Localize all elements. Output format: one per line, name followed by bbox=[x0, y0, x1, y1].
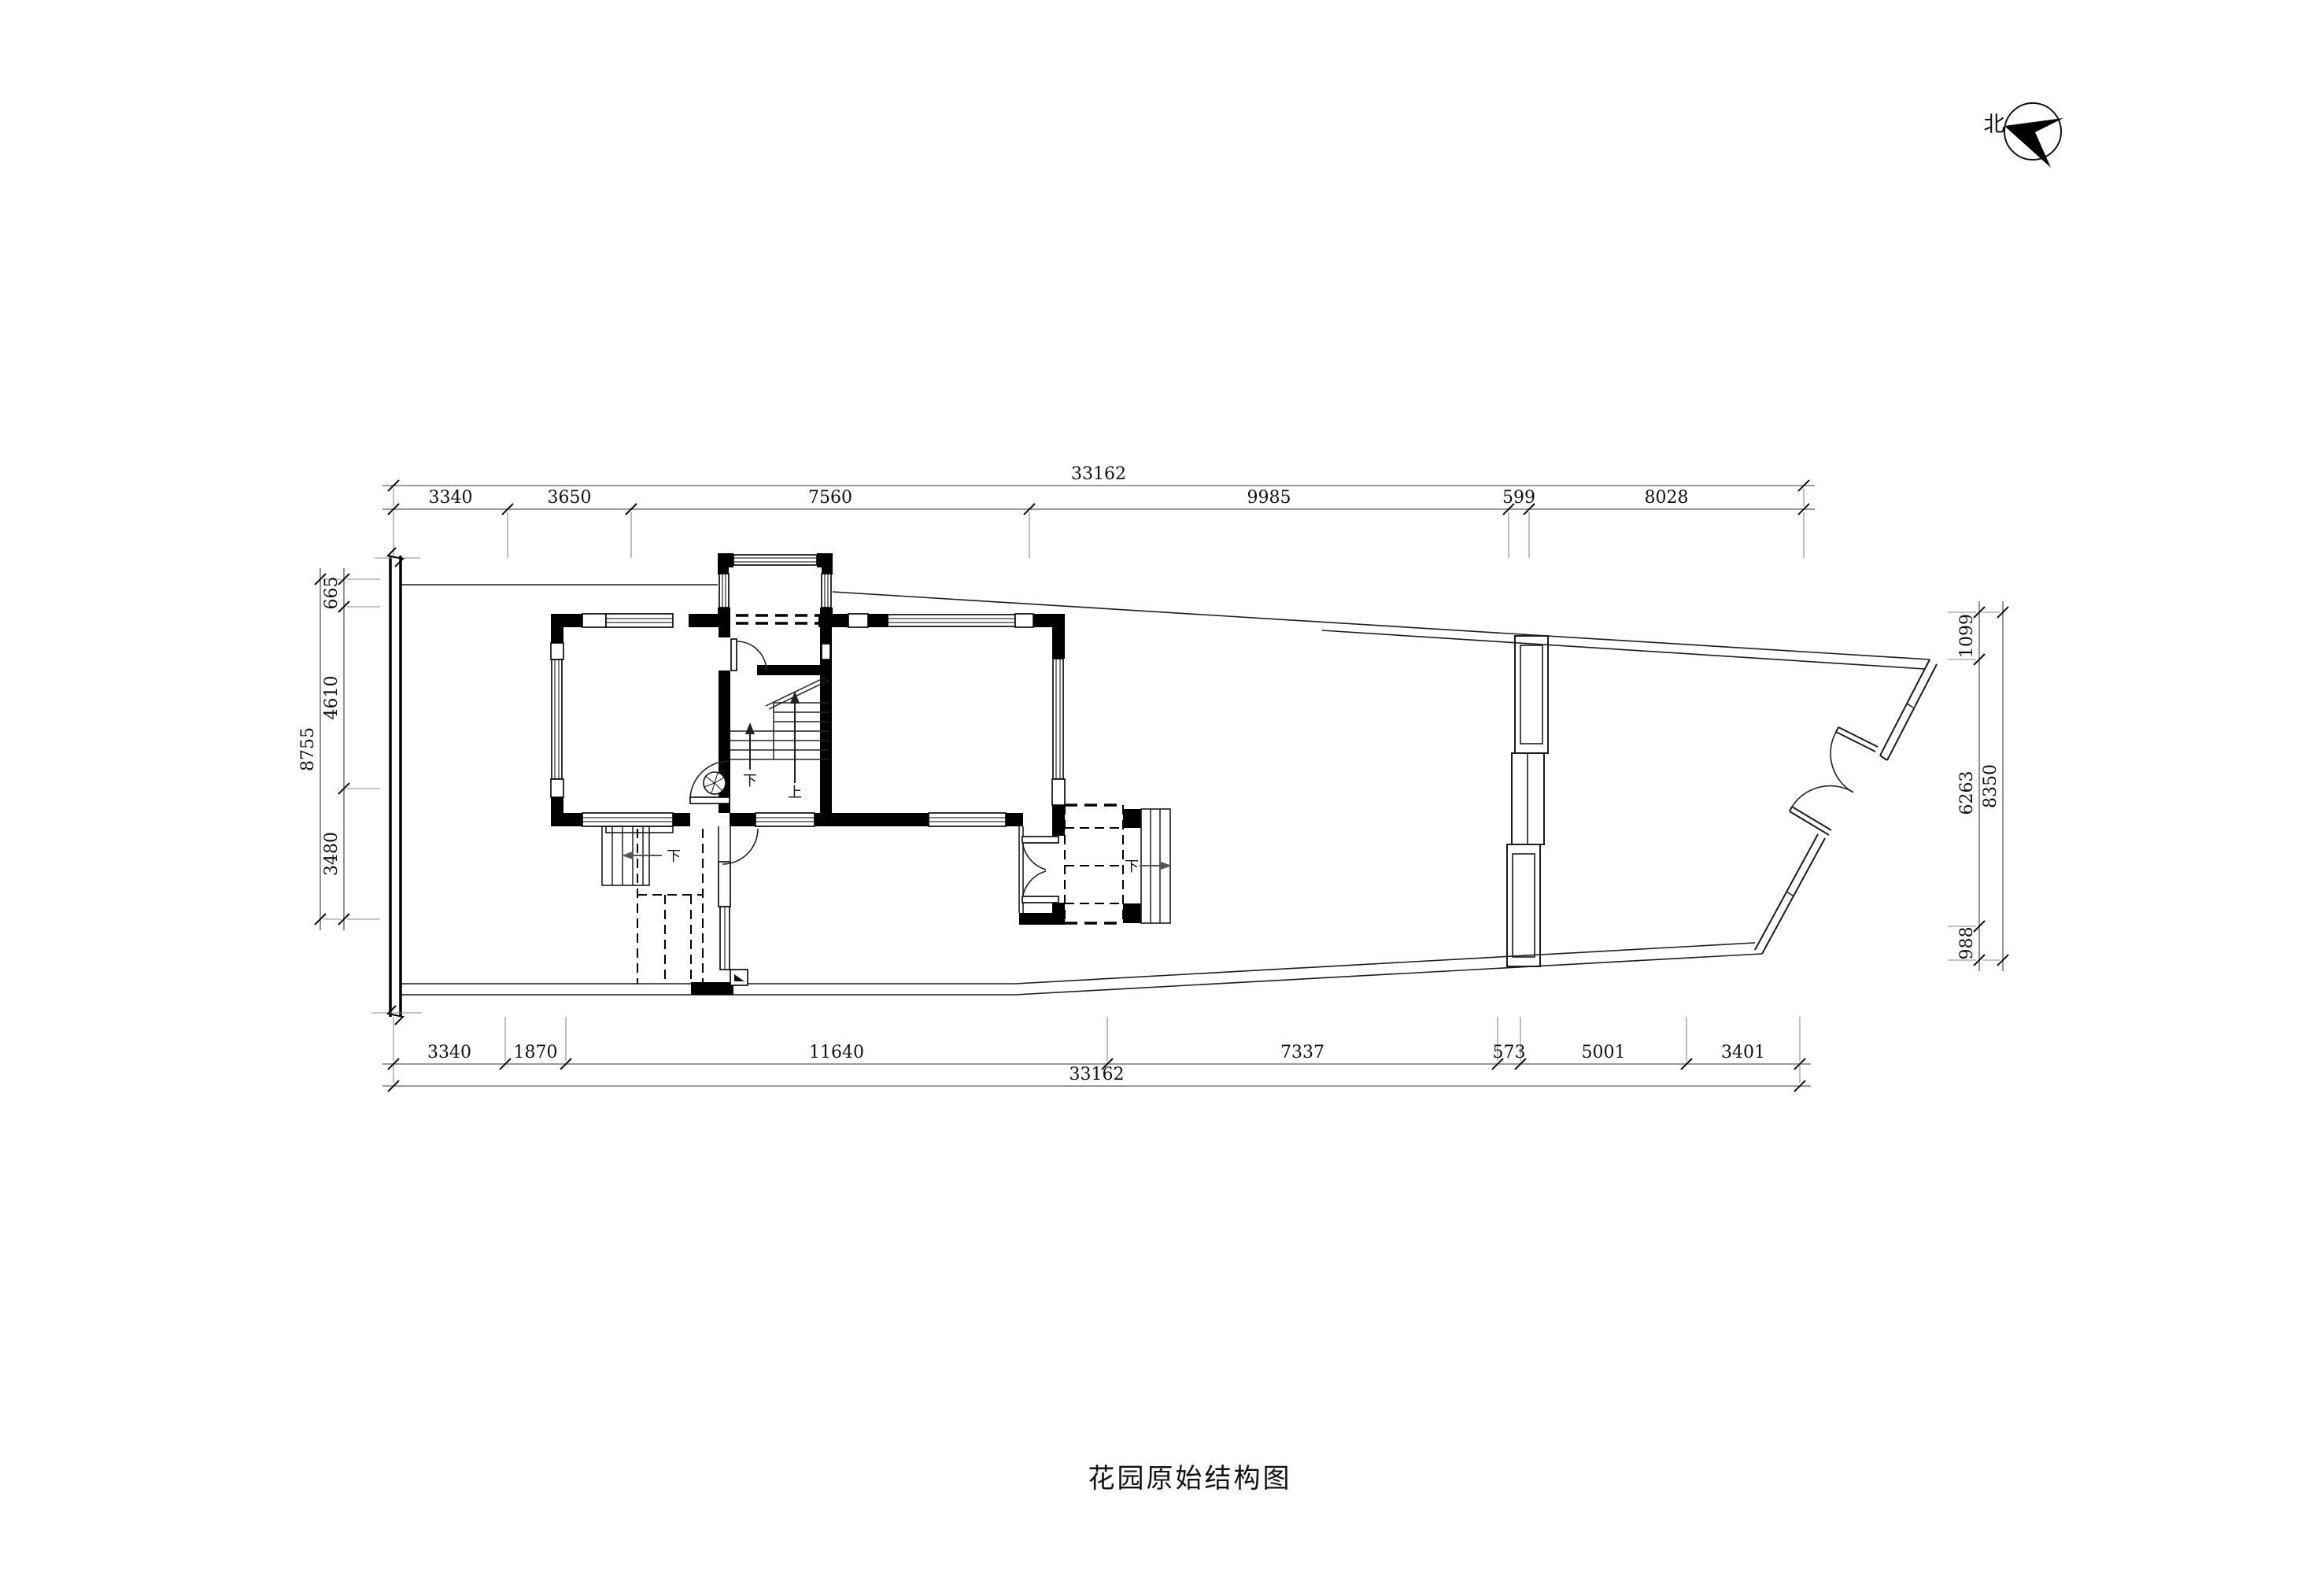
stair-direction-label: 上 bbox=[788, 785, 802, 801]
gate-door-arc-lower bbox=[1792, 786, 1853, 807]
north-label: 北 bbox=[1984, 113, 2005, 137]
dim-label: 3401 bbox=[1721, 1043, 1765, 1062]
left-retaining-wall bbox=[371, 548, 422, 1025]
dim-label: 988 bbox=[1957, 927, 1977, 960]
door-arc bbox=[722, 829, 758, 864]
door-leaf bbox=[690, 797, 730, 804]
terrace bbox=[1065, 805, 1172, 923]
dim-label: 665 bbox=[322, 577, 342, 610]
porch-dashed-beams bbox=[736, 615, 818, 623]
dim-label: 8028 bbox=[1645, 488, 1689, 508]
dim-label: 6263 bbox=[1957, 771, 1977, 815]
dim-label: 33162 bbox=[1071, 464, 1126, 484]
dim-label: 599 bbox=[1502, 488, 1535, 508]
drawing-title: 花园原始结构图 bbox=[1088, 1463, 1292, 1494]
garden-wall-windows bbox=[1507, 636, 1548, 966]
dim-label: 8350 bbox=[1981, 764, 2001, 808]
door-leaf bbox=[1022, 896, 1058, 903]
dim-label: 1099 bbox=[1957, 614, 1977, 658]
dim-label: 1870 bbox=[514, 1043, 558, 1062]
building-windows bbox=[551, 555, 1065, 970]
north-arrow: 北 bbox=[1984, 103, 2064, 168]
stair-direction-label: 下 bbox=[1125, 859, 1139, 875]
dim-label: 8755 bbox=[298, 727, 318, 771]
dim-label: 5001 bbox=[1582, 1043, 1626, 1062]
drawing-sheet: 北 33162334036507560998559980283340187011… bbox=[0, 0, 2309, 1596]
dim-label: 7560 bbox=[808, 488, 852, 508]
door-leaf bbox=[719, 862, 730, 907]
dim-label: 7337 bbox=[1280, 1043, 1324, 1062]
stair-hall bbox=[730, 677, 829, 783]
wall-openings bbox=[719, 637, 730, 671]
dim-label: 11640 bbox=[809, 1043, 864, 1062]
dim-label: 33162 bbox=[1070, 1065, 1125, 1084]
site-boundary bbox=[401, 585, 1930, 995]
dim-label: 3340 bbox=[429, 488, 473, 508]
dim-label: 3650 bbox=[548, 488, 592, 508]
stair-direction-label: 下 bbox=[743, 773, 757, 789]
door-arc bbox=[1022, 840, 1046, 870]
dim-label: 9985 bbox=[1247, 488, 1291, 508]
dim-label: 3480 bbox=[322, 832, 342, 876]
stair-direction-label: 下 bbox=[667, 848, 681, 865]
garden-gate bbox=[1755, 659, 1937, 954]
door-leaf bbox=[731, 639, 737, 671]
round-column-symbol bbox=[704, 772, 726, 794]
dim-label: 4610 bbox=[322, 676, 342, 720]
door-leaf bbox=[1022, 837, 1058, 843]
gate-door-arc-upper bbox=[1831, 732, 1853, 792]
door-arc bbox=[1022, 871, 1046, 900]
dim-label: 3340 bbox=[427, 1043, 471, 1062]
dim-label: 573 bbox=[1493, 1043, 1526, 1062]
